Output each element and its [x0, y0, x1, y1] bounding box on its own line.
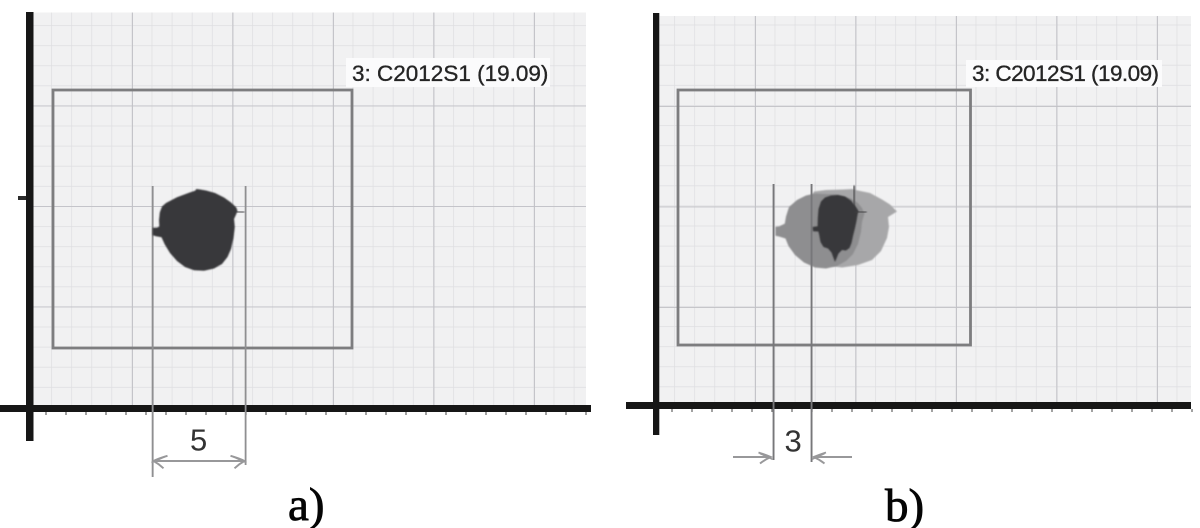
svg-text:3: C2012S1 (19.09): 3: C2012S1 (19.09) — [352, 61, 548, 86]
svg-text:5: 5 — [190, 423, 207, 458]
svg-text:3: C2012S1 (19.09): 3: C2012S1 (19.09) — [972, 61, 1159, 86]
svg-text:a): a) — [288, 479, 325, 528]
svg-text:b): b) — [885, 480, 924, 528]
svg-text:3: 3 — [785, 424, 802, 459]
